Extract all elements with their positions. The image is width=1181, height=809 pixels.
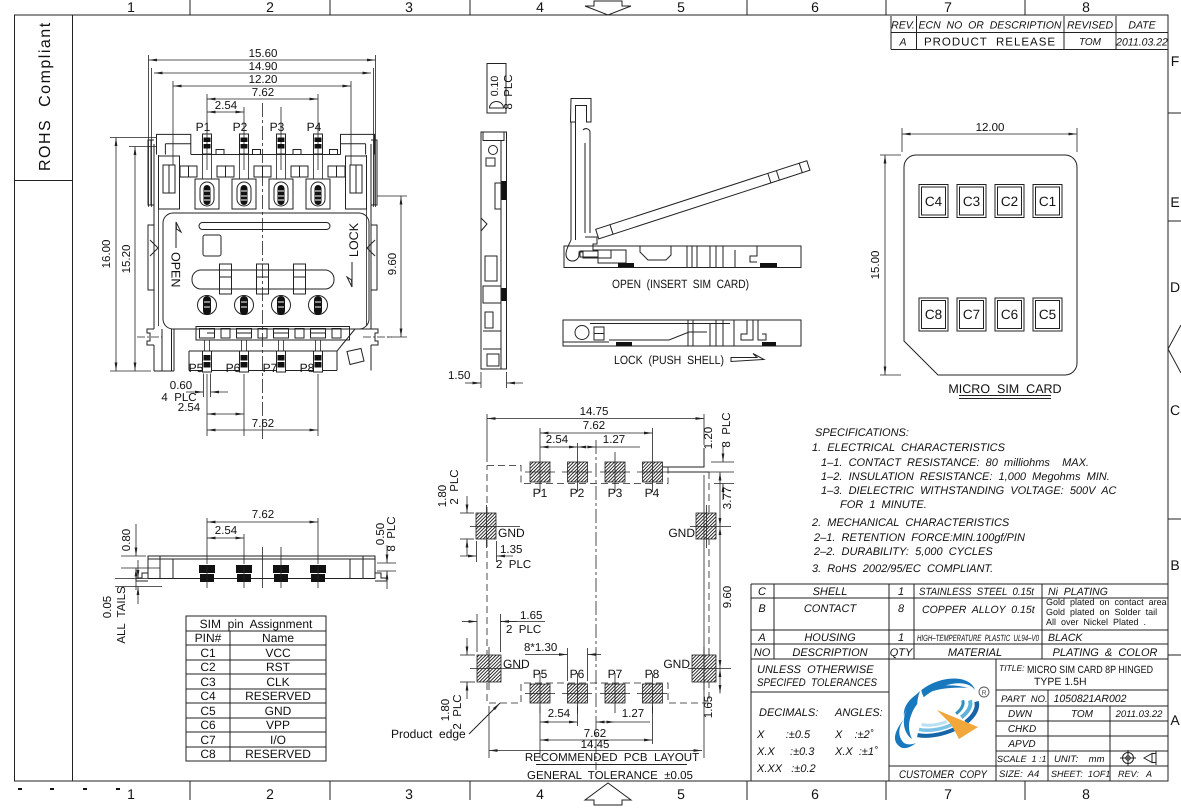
svg-text:C5: C5 xyxy=(200,704,216,718)
svg-text:P8: P8 xyxy=(300,361,315,375)
svg-text:I/O: I/O xyxy=(270,733,286,747)
svg-text:Gold plated on Solder tail: Gold plated on Solder tail xyxy=(1046,607,1157,617)
svg-text:CHKD: CHKD xyxy=(1008,724,1036,735)
svg-text:1–1. CONTACT RESISTANCE: 80: 1–1. CONTACT RESISTANCE: 80 milliohms MA… xyxy=(818,457,1089,469)
svg-text:HOUSING: HOUSING xyxy=(804,632,856,644)
svg-text:R: R xyxy=(981,690,986,697)
svg-text:7: 7 xyxy=(944,0,952,15)
svg-text:2 PLC: 2 PLC xyxy=(496,559,531,571)
svg-text:SHEET: 1OF1: SHEET: 1OF1 xyxy=(1051,769,1110,779)
svg-text:1.35: 1.35 xyxy=(500,544,522,556)
svg-text:2011.03.22: 2011.03.22 xyxy=(1115,37,1168,49)
svg-text:A: A xyxy=(898,37,906,49)
svg-text:C8: C8 xyxy=(200,747,216,761)
svg-text:SHELL: SHELL xyxy=(813,586,848,598)
svg-text:B: B xyxy=(758,603,765,615)
svg-text:1–2. INSULATION RESISTANCE:: 1–2. INSULATION RESISTANCE: 1,000 Megohm… xyxy=(818,471,1110,483)
svg-text:D: D xyxy=(1170,279,1180,295)
svg-text:2.54: 2.54 xyxy=(178,402,201,414)
svg-text:1.80: 1.80 xyxy=(437,485,449,507)
svg-text:CONTACT: CONTACT xyxy=(804,603,858,615)
svg-text:SCALE 1 :1: SCALE 1 :1 xyxy=(997,754,1047,764)
svg-text:SIM pin Assignment: SIM pin Assignment xyxy=(200,617,313,631)
svg-text:TITLE:: TITLE: xyxy=(999,663,1025,673)
svg-text:P4: P4 xyxy=(307,120,322,134)
svg-text:MATERIAL: MATERIAL xyxy=(948,647,1002,659)
svg-text:3.77: 3.77 xyxy=(722,487,734,509)
svg-text:LOCK: LOCK xyxy=(347,222,361,257)
svg-text:1.65: 1.65 xyxy=(703,696,715,718)
svg-text:TYPE 1.5H: TYPE 1.5H xyxy=(1034,676,1087,688)
svg-text:VCC: VCC xyxy=(265,646,291,660)
svg-text:DATE: DATE xyxy=(1128,20,1156,32)
svg-text:BLACK: BLACK xyxy=(1048,632,1083,644)
svg-text:F: F xyxy=(1171,53,1180,69)
svg-text:14.90: 14.90 xyxy=(249,61,278,73)
svg-text:C1: C1 xyxy=(200,646,216,660)
svg-text:3. RoHS 2002/95/EC COMPLIAN: 3. RoHS 2002/95/EC COMPLIANT. xyxy=(812,563,993,575)
svg-text:Product edge: Product edge xyxy=(391,727,466,741)
svg-text:REV.: REV. xyxy=(891,20,915,32)
svg-text:C: C xyxy=(1170,402,1180,418)
svg-text:LOCK (PUSH SHELL): LOCK (PUSH SHELL) xyxy=(614,353,724,367)
svg-text:12.00: 12.00 xyxy=(976,122,1005,134)
svg-text:QTY: QTY xyxy=(890,647,913,659)
svg-text:C: C xyxy=(758,586,766,598)
svg-text:RST: RST xyxy=(266,660,291,674)
svg-text:RECOMMENDED PCB LAYOUT: RECOMMENDED PCB LAYOUT xyxy=(525,752,699,764)
svg-text:P6: P6 xyxy=(570,667,585,681)
svg-text:15.20: 15.20 xyxy=(121,245,133,274)
svg-text:7.62: 7.62 xyxy=(252,87,274,99)
svg-text:UNLESS OTHERWISE: UNLESS OTHERWISE xyxy=(757,664,874,676)
svg-text:2–1. RETENTION FORCE:MIN.100: 2–1. RETENTION FORCE:MIN.100gf/PIN xyxy=(813,532,1025,544)
svg-text:COPPER ALLOY 0.15t: COPPER ALLOY 0.15t xyxy=(922,604,1036,616)
svg-text:5: 5 xyxy=(677,0,685,15)
svg-text:UNIT: mm: UNIT: mm xyxy=(1054,754,1105,765)
svg-text:P8: P8 xyxy=(645,667,660,681)
svg-text:0.60: 0.60 xyxy=(170,380,192,392)
svg-text:E: E xyxy=(1170,194,1179,210)
svg-text:7.62: 7.62 xyxy=(252,418,274,430)
svg-text:9.60: 9.60 xyxy=(722,586,734,608)
svg-text:C4: C4 xyxy=(925,194,943,209)
svg-text:C3: C3 xyxy=(200,675,216,689)
svg-text:1.27: 1.27 xyxy=(622,708,644,720)
svg-text:2–2. DURABILITY: 5,000 CYCL: 2–2. DURABILITY: 5,000 CYCLES xyxy=(813,546,993,558)
svg-text:6: 6 xyxy=(811,786,819,802)
svg-text:MICRO SIM CARD: MICRO SIM CARD xyxy=(948,382,1061,396)
svg-text:X.X :±1˚: X.X :±1˚ xyxy=(834,746,878,758)
svg-text:MICRO SIM CARD 8P HINGED: MICRO SIM CARD 8P HINGED xyxy=(1027,664,1153,676)
svg-text:0.05: 0.05 xyxy=(102,596,114,618)
svg-text:C2: C2 xyxy=(1001,194,1018,209)
svg-text:1: 1 xyxy=(127,0,135,15)
svg-text:CUSTOMER COPY: CUSTOMER COPY xyxy=(899,769,988,781)
svg-text:STAINLESS STEEL 0.15t: STAINLESS STEEL 0.15t xyxy=(919,586,1035,598)
svg-text:C4: C4 xyxy=(200,689,216,703)
svg-text:P6: P6 xyxy=(226,361,241,375)
svg-text:ANGLES:: ANGLES: xyxy=(834,707,883,719)
svg-text:8: 8 xyxy=(1082,0,1090,15)
svg-text:GENERAL TOLERANCE ±0.05: GENERAL TOLERANCE ±0.05 xyxy=(527,770,693,782)
svg-text:C6: C6 xyxy=(1001,307,1018,322)
svg-text:PRODUCT RELEASE: PRODUCT RELEASE xyxy=(924,37,1056,49)
svg-text:7.62: 7.62 xyxy=(583,420,605,432)
svg-text:1050821AR002: 1050821AR002 xyxy=(1054,693,1127,705)
svg-text:VPP: VPP xyxy=(266,718,290,732)
svg-text:PLATING & COLOR: PLATING & COLOR xyxy=(1053,647,1158,659)
svg-text:X.X :±0.3: X.X :±0.3 xyxy=(756,746,815,758)
svg-text:NO: NO xyxy=(754,647,771,659)
svg-text:4: 4 xyxy=(536,0,544,15)
svg-text:1–3. DIELECTRIC WITHSTANDING: 1–3. DIELECTRIC WITHSTANDING VOLTAGE: 50… xyxy=(818,485,1117,497)
svg-text:FOR 1 MINUTE.: FOR 1 MINUTE. xyxy=(840,499,927,511)
svg-text:1.50: 1.50 xyxy=(448,370,470,382)
svg-text:12.20: 12.20 xyxy=(249,74,278,86)
svg-text:P5: P5 xyxy=(533,667,548,681)
svg-text:3: 3 xyxy=(405,786,413,802)
svg-text:CLK: CLK xyxy=(266,675,289,689)
svg-text:A: A xyxy=(1170,712,1180,728)
svg-text:6: 6 xyxy=(811,0,819,15)
svg-text:SPECIFICATIONS:: SPECIFICATIONS: xyxy=(815,427,909,439)
svg-text:TOM: TOM xyxy=(1071,709,1094,720)
svg-text:1.65: 1.65 xyxy=(520,610,542,622)
svg-text:PART NO.: PART NO. xyxy=(1001,694,1048,705)
svg-text:TOM: TOM xyxy=(1079,37,1102,48)
svg-text:C7: C7 xyxy=(200,733,216,747)
svg-text:P3: P3 xyxy=(270,120,285,134)
svg-text:SIZE: A4: SIZE: A4 xyxy=(999,769,1039,780)
svg-text:1: 1 xyxy=(127,786,135,802)
svg-text:8: 8 xyxy=(898,603,905,615)
svg-text:15.60: 15.60 xyxy=(249,48,278,60)
svg-text:0.80: 0.80 xyxy=(121,529,133,551)
svg-text:P7: P7 xyxy=(263,361,278,375)
svg-text:P1: P1 xyxy=(533,486,548,500)
svg-text:14.75: 14.75 xyxy=(580,406,609,418)
svg-text:8 PLC: 8 PLC xyxy=(386,516,398,551)
svg-text:8 PLC: 8 PLC xyxy=(503,74,515,109)
svg-text:P2: P2 xyxy=(570,486,585,500)
svg-text:1.20: 1.20 xyxy=(703,427,715,449)
svg-text:3: 3 xyxy=(405,0,413,15)
svg-text:2: 2 xyxy=(266,786,274,802)
svg-text:C7: C7 xyxy=(963,307,980,322)
svg-text:8: 8 xyxy=(1082,786,1090,802)
svg-text:X :±0.5: X :±0.5 xyxy=(756,729,811,741)
svg-text:2.54: 2.54 xyxy=(215,100,238,112)
svg-text:C6: C6 xyxy=(200,718,216,732)
svg-text:C3: C3 xyxy=(963,194,980,209)
svg-text:2011.03.22: 2011.03.22 xyxy=(1115,709,1164,720)
svg-text:2. MECHANICAL CHARACTERISTIC: 2. MECHANICAL CHARACTERISTICS xyxy=(811,517,1010,529)
svg-text:All over Nickel Plated .: All over Nickel Plated . xyxy=(1046,617,1146,627)
svg-text:Gold plated on contact are: Gold plated on contact area xyxy=(1046,597,1167,607)
svg-text:REV: A: REV: A xyxy=(1118,769,1152,779)
svg-text:1: 1 xyxy=(898,586,904,598)
svg-text:P1: P1 xyxy=(196,120,211,134)
svg-text:5: 5 xyxy=(677,786,685,802)
svg-text:HIGH–TEMPERATURE PLASTIC UL9: HIGH–TEMPERATURE PLASTIC UL94–V0 xyxy=(917,633,1039,643)
svg-text:GND: GND xyxy=(498,526,525,540)
svg-text:RESERVED: RESERVED xyxy=(245,747,311,761)
svg-text:SPECIFED TOLERANCES: SPECIFED TOLERANCES xyxy=(757,677,878,689)
svg-text:2.54: 2.54 xyxy=(548,708,571,720)
svg-text:16.00: 16.00 xyxy=(101,240,113,269)
svg-text:OPEN (INSERT SIM CARD): OPEN (INSERT SIM CARD) xyxy=(612,277,749,291)
svg-text:4: 4 xyxy=(536,786,544,802)
svg-text:P5: P5 xyxy=(189,361,204,375)
svg-text:B: B xyxy=(1170,557,1179,573)
svg-text:GND: GND xyxy=(663,657,690,671)
svg-text:7.62: 7.62 xyxy=(252,509,274,521)
svg-text:DESCRIPTION: DESCRIPTION xyxy=(792,647,867,659)
svg-text:REVISED: REVISED xyxy=(1067,20,1114,32)
svg-text:OPEN: OPEN xyxy=(169,252,183,287)
svg-text:1.27: 1.27 xyxy=(603,434,625,446)
svg-text:A: A xyxy=(757,632,765,644)
svg-text:8*1.30: 8*1.30 xyxy=(524,642,557,654)
svg-text:15.00: 15.00 xyxy=(870,251,882,280)
svg-text:X :±2˚: X :±2˚ xyxy=(834,729,874,741)
svg-text:C2: C2 xyxy=(200,660,216,674)
svg-text:P4: P4 xyxy=(645,486,660,500)
svg-text:2: 2 xyxy=(266,0,274,15)
svg-text:C8: C8 xyxy=(925,307,942,322)
svg-text:P2: P2 xyxy=(233,120,248,134)
svg-text:1: 1 xyxy=(898,632,904,644)
svg-text:0.10: 0.10 xyxy=(489,76,501,97)
svg-text:14.45: 14.45 xyxy=(581,739,610,751)
svg-text:P7: P7 xyxy=(608,667,623,681)
svg-text:ALL TAILS: ALL TAILS xyxy=(116,586,128,644)
svg-text:2.54: 2.54 xyxy=(215,525,238,537)
svg-text:DWN: DWN xyxy=(1008,709,1033,720)
svg-text:1.80: 1.80 xyxy=(440,699,452,721)
svg-text:8 PLC: 8 PLC xyxy=(721,412,733,447)
svg-text:P3: P3 xyxy=(608,486,623,500)
svg-text:1. ELECTRICAL CHARACTERISTIC: 1. ELECTRICAL CHARACTERISTICS xyxy=(812,442,1006,454)
svg-text:ECN NO OR DESCRIPTION: ECN NO OR DESCRIPTION xyxy=(919,20,1062,32)
svg-text:X.XX :±0.2: X.XX :±0.2 xyxy=(756,763,816,775)
svg-text:C5: C5 xyxy=(1039,307,1056,322)
svg-text:GND: GND xyxy=(503,657,530,671)
svg-text:2 PLC: 2 PLC xyxy=(452,694,464,729)
svg-text:PIN#: PIN# xyxy=(195,631,222,645)
svg-text:2 PLC: 2 PLC xyxy=(449,469,461,504)
svg-text:C1: C1 xyxy=(1039,194,1056,209)
svg-text:7: 7 xyxy=(944,786,952,802)
svg-text:GND: GND xyxy=(265,704,292,718)
svg-text:9.60: 9.60 xyxy=(387,253,399,275)
svg-text:RESERVED: RESERVED xyxy=(245,689,311,703)
svg-text:DECIMALS:: DECIMALS: xyxy=(759,707,818,719)
svg-text:Name: Name xyxy=(262,631,294,645)
svg-text:2.54: 2.54 xyxy=(546,434,569,446)
svg-text:APVD: APVD xyxy=(1007,739,1035,750)
svg-text:2 PLC: 2 PLC xyxy=(506,624,541,636)
svg-text:GND: GND xyxy=(668,526,695,540)
svg-text:ROHS Compliant: ROHS Compliant xyxy=(37,21,54,171)
